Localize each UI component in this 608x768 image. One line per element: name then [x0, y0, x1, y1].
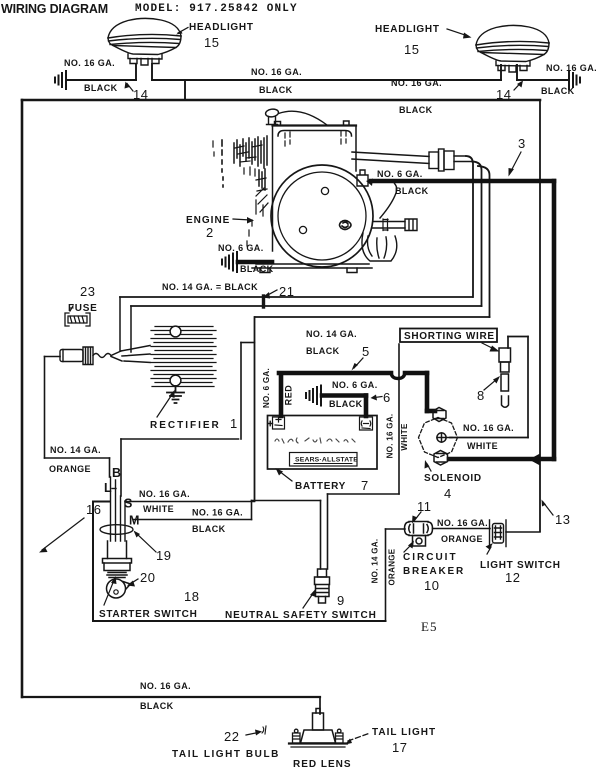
- svg-text:BLACK: BLACK: [240, 264, 274, 274]
- svg-text:NO. 14 GA.: NO. 14 GA.: [371, 539, 380, 584]
- svg-text:NO. 16 GA.: NO. 16 GA.: [391, 78, 442, 88]
- svg-text:E5: E5: [421, 619, 437, 634]
- svg-text:NO. 16 GA.: NO. 16 GA.: [139, 489, 190, 499]
- svg-text:18: 18: [184, 589, 199, 604]
- svg-text:17: 17: [392, 740, 407, 755]
- svg-text:SHORTING WIRE: SHORTING WIRE: [404, 331, 495, 342]
- svg-text:16: 16: [86, 502, 101, 517]
- svg-text:NO. 14 GA. = BLACK: NO. 14 GA. = BLACK: [162, 282, 258, 292]
- svg-text:NO. 14 GA.: NO. 14 GA.: [50, 445, 101, 455]
- svg-text:NEUTRAL SAFETY SWITCH: NEUTRAL SAFETY SWITCH: [225, 610, 377, 621]
- svg-text:FUSE: FUSE: [68, 303, 97, 314]
- svg-text:NO. 16 GA.: NO. 16 GA.: [437, 518, 488, 528]
- svg-text:BLACK: BLACK: [329, 399, 363, 409]
- svg-text:BLACK: BLACK: [399, 105, 433, 115]
- svg-text:CIRCUIT: CIRCUIT: [403, 552, 458, 563]
- svg-text:HEADLIGHT: HEADLIGHT: [189, 22, 254, 33]
- svg-text:NO. 16 GA.: NO. 16 GA.: [546, 63, 597, 73]
- svg-text:ORANGE: ORANGE: [49, 464, 91, 474]
- svg-text:HEADLIGHT: HEADLIGHT: [375, 24, 440, 35]
- svg-text:10: 10: [424, 578, 439, 593]
- svg-text:NO. 16 GA.: NO. 16 GA.: [192, 508, 243, 518]
- svg-text:WIRING DIAGRAM: WIRING DIAGRAM: [1, 2, 108, 16]
- svg-text:SOLENOID: SOLENOID: [424, 473, 482, 484]
- svg-text:BLACK: BLACK: [306, 346, 340, 356]
- svg-text:9: 9: [337, 593, 345, 608]
- svg-text:4: 4: [444, 486, 452, 501]
- svg-text:NO. 14 GA.: NO. 14 GA.: [306, 329, 357, 339]
- svg-text:NO. 6 GA.: NO. 6 GA.: [332, 380, 378, 390]
- svg-text:3: 3: [518, 136, 526, 151]
- svg-text:STARTER SWITCH: STARTER SWITCH: [99, 609, 198, 620]
- svg-text:12: 12: [505, 570, 520, 585]
- svg-text:NO. 16 GA.: NO. 16 GA.: [463, 423, 514, 433]
- svg-text:NO. 16 GA.: NO. 16 GA.: [64, 58, 115, 68]
- svg-text:2: 2: [206, 225, 214, 240]
- svg-text:19: 19: [156, 548, 171, 563]
- svg-text:21: 21: [279, 284, 294, 299]
- svg-text:TAIL LIGHT BULB: TAIL LIGHT BULB: [172, 749, 280, 760]
- svg-text:11: 11: [417, 499, 432, 514]
- svg-text:M: M: [129, 514, 139, 528]
- svg-text:BLACK: BLACK: [541, 86, 575, 96]
- svg-text:15: 15: [204, 35, 219, 50]
- svg-text:ORANGE: ORANGE: [441, 534, 483, 544]
- svg-text:20: 20: [140, 570, 155, 585]
- svg-text:SEARS·ALLSTATE: SEARS·ALLSTATE: [295, 457, 358, 464]
- svg-text:RECTIFIER: RECTIFIER: [150, 420, 221, 431]
- svg-text:BLACK: BLACK: [192, 524, 226, 534]
- svg-text:WHITE: WHITE: [400, 423, 409, 451]
- svg-text:6: 6: [383, 390, 391, 405]
- svg-text:NO. 6 GA.: NO. 6 GA.: [262, 368, 271, 408]
- svg-text:1: 1: [230, 416, 238, 431]
- svg-text:7: 7: [361, 478, 369, 493]
- svg-text:RED: RED: [284, 385, 294, 406]
- svg-text:BLACK: BLACK: [84, 83, 118, 93]
- svg-text:RED LENS: RED LENS: [293, 759, 352, 768]
- svg-text:NO. 16 GA.: NO. 16 GA.: [386, 414, 395, 459]
- svg-text:23: 23: [80, 284, 95, 299]
- svg-text:NO. 6 GA.: NO. 6 GA.: [218, 243, 264, 253]
- svg-text:BLACK: BLACK: [395, 186, 429, 196]
- svg-text:WHITE: WHITE: [467, 441, 498, 451]
- svg-text:BREAKER: BREAKER: [403, 566, 465, 577]
- svg-text:22: 22: [224, 729, 239, 744]
- svg-text:WHITE: WHITE: [143, 504, 174, 514]
- svg-text:ORANGE: ORANGE: [388, 548, 397, 585]
- svg-text:13: 13: [555, 512, 570, 527]
- svg-text:TAIL LIGHT: TAIL LIGHT: [372, 727, 436, 738]
- svg-text:15: 15: [404, 42, 419, 57]
- svg-text:MODEL: 917.25842 ONLY: MODEL: 917.25842 ONLY: [135, 3, 298, 15]
- svg-text:NO. 16 GA.: NO. 16 GA.: [140, 681, 191, 691]
- svg-text:BATTERY: BATTERY: [295, 481, 346, 492]
- svg-text:B: B: [112, 466, 121, 480]
- svg-text:NO. 6 GA.: NO. 6 GA.: [377, 169, 423, 179]
- svg-text:BLACK: BLACK: [259, 85, 293, 95]
- svg-text:5: 5: [362, 344, 370, 359]
- svg-text:BLACK: BLACK: [140, 701, 174, 711]
- svg-text:NO. 16 GA.: NO. 16 GA.: [251, 67, 302, 77]
